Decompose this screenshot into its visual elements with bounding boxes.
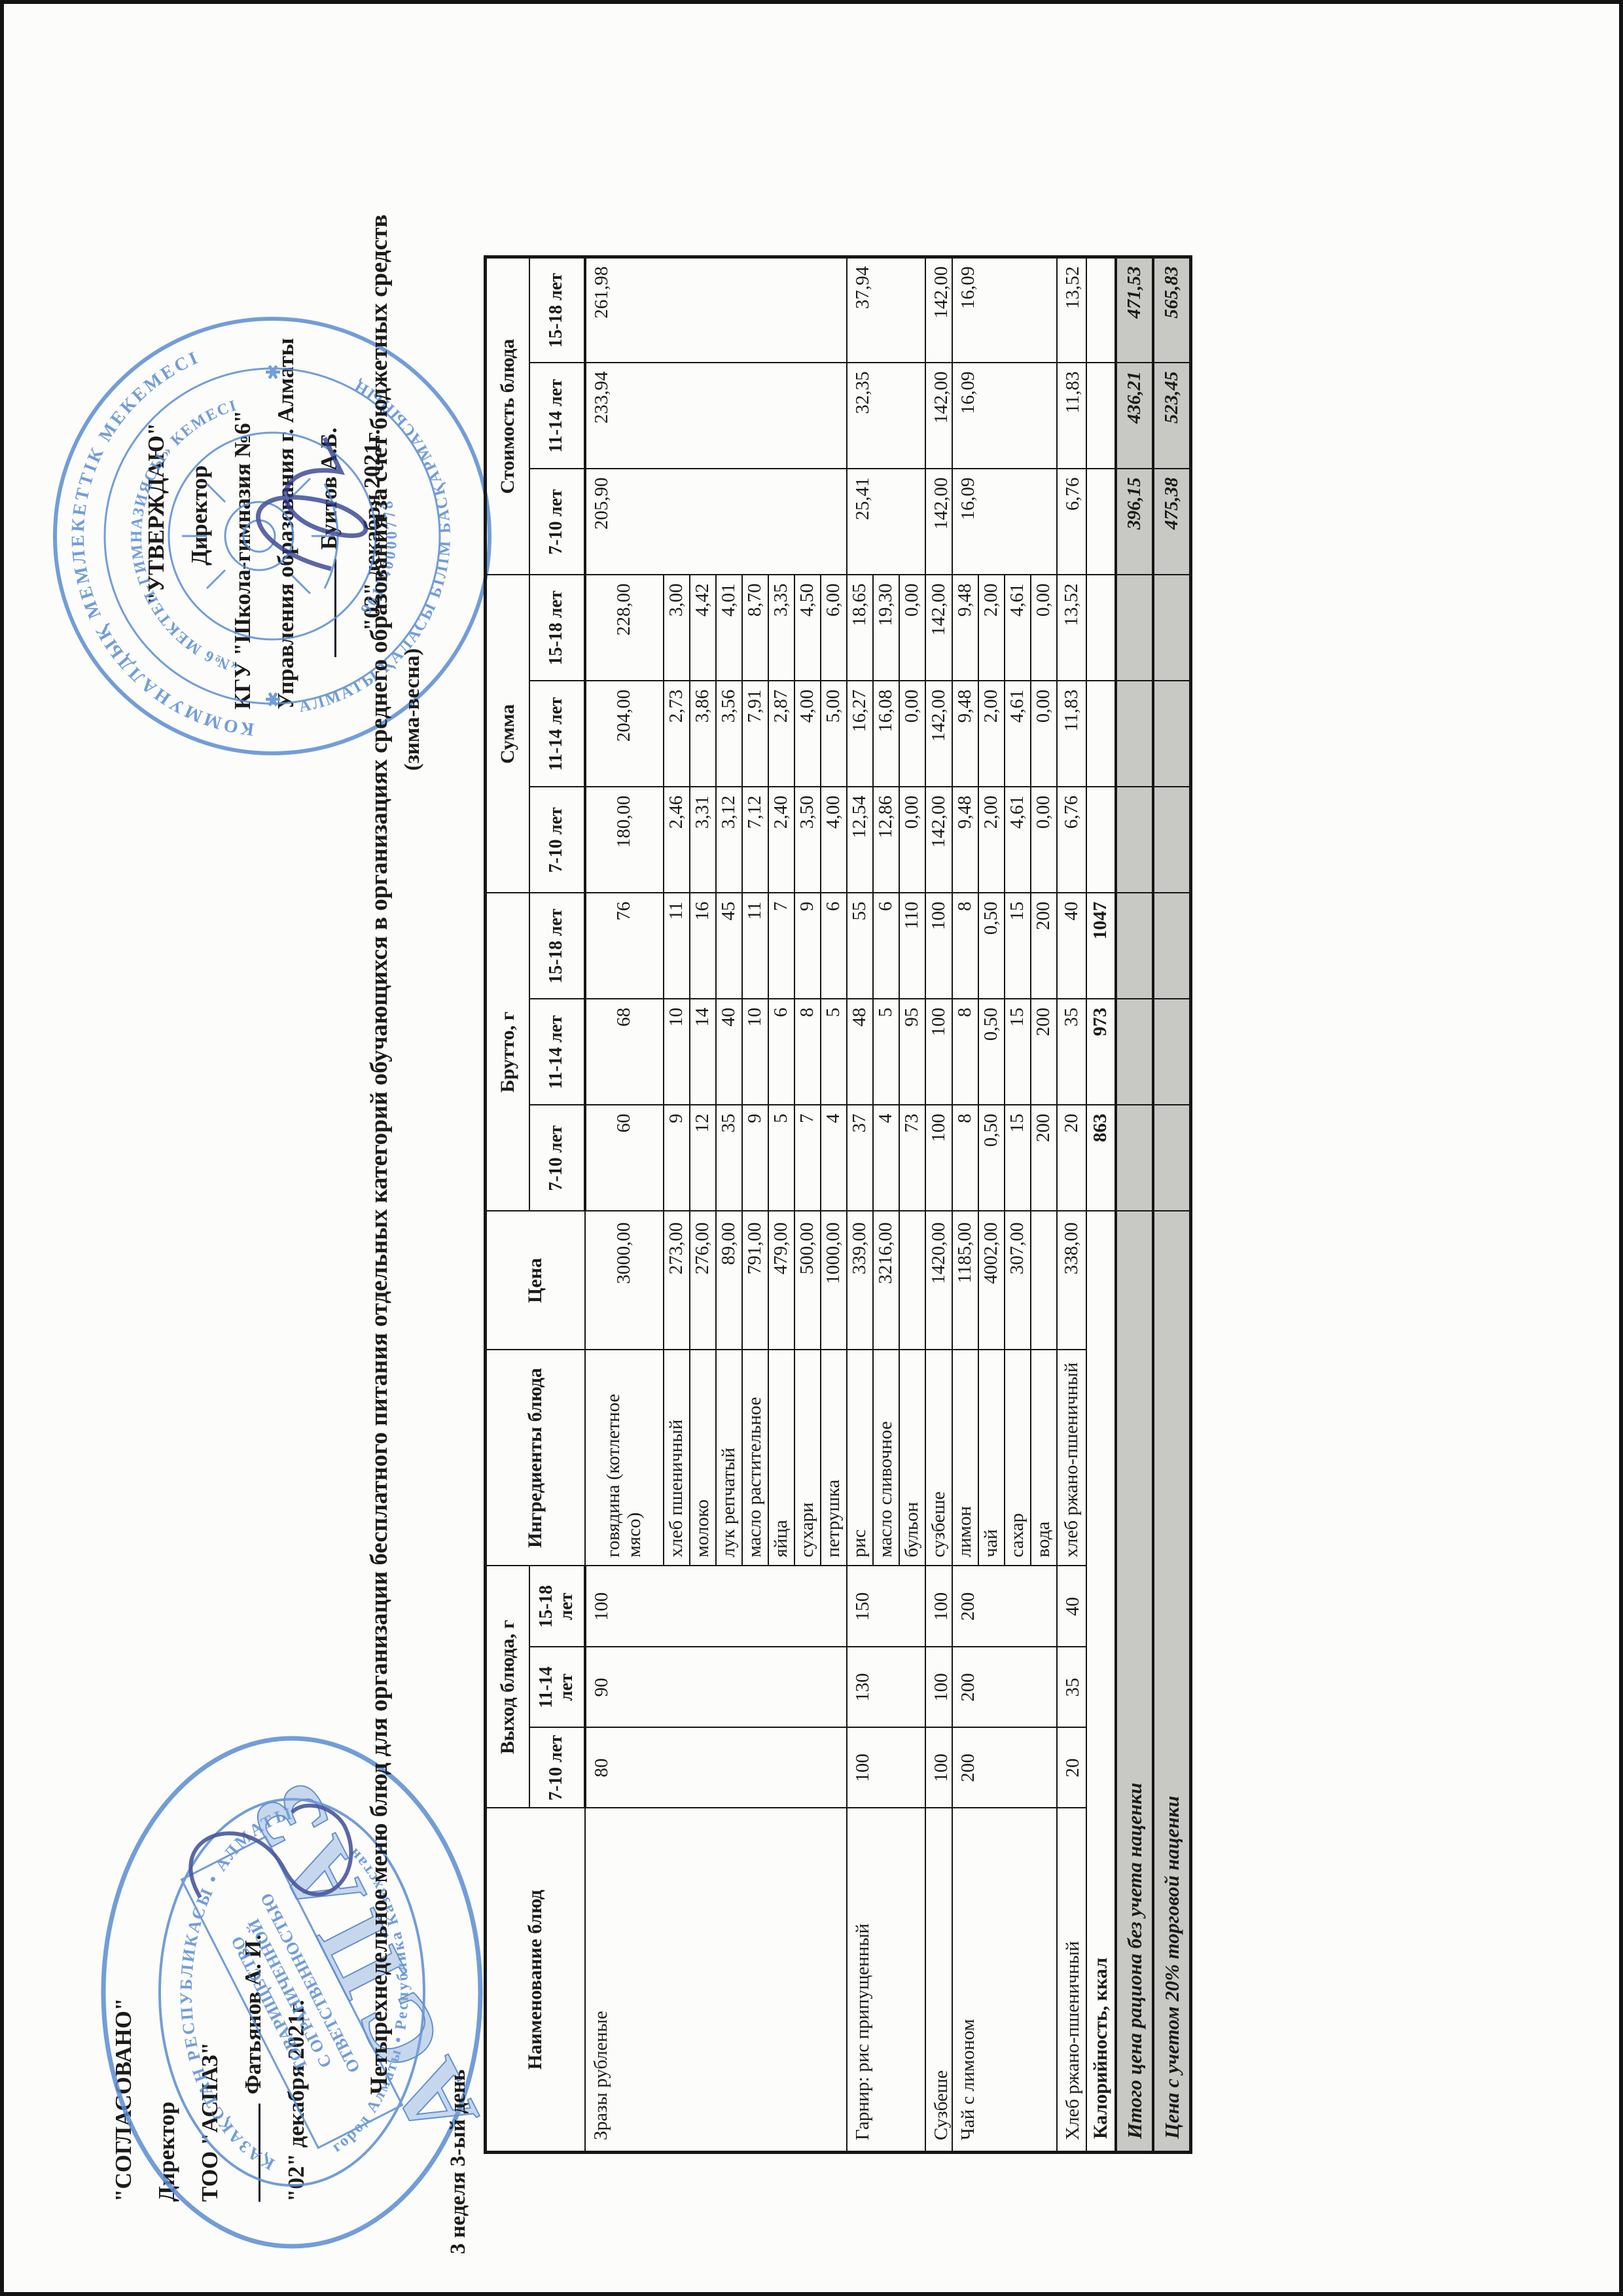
summary-row: Цена с учетом 20% торговой наценки475,38… <box>1153 257 1191 2152</box>
cell-summary-label: Итого цена рациона без учета наценки <box>1116 1211 1153 2152</box>
col-header-age: 7-10 лет <box>529 469 585 575</box>
cell-price: 3000,00 <box>585 1211 664 1350</box>
cell-empty <box>1116 893 1153 999</box>
cell-summary-value: 396,15 <box>1116 469 1153 575</box>
cell-brutto: 15 <box>1005 1105 1031 1211</box>
cell-ingredient: бульон <box>899 1350 925 1566</box>
col-header-age: 7-10 лет <box>529 1105 585 1211</box>
cell-brutto: 73 <box>899 1105 925 1211</box>
cell-ingredient: масло сливочное <box>873 1350 899 1566</box>
cell-yield: 40 <box>1057 1566 1086 1647</box>
cell-brutto: 0,50 <box>978 893 1005 999</box>
cell-cost: 233,94 <box>585 363 847 469</box>
cell-brutto: 35 <box>716 1105 742 1211</box>
cell-price: 307,00 <box>1005 1211 1031 1350</box>
cell-brutto: 6 <box>821 893 847 999</box>
scanned-document-page: "СОГЛАСОВАНО" Директор ТОО "АСПАЗ" Фатья… <box>0 0 1623 2296</box>
cell-sum: 4,61 <box>1005 787 1031 893</box>
menu-table: Наименование блюдВыход блюда, гИнгредиен… <box>484 255 1192 2154</box>
col-header-cost: Стоимость блюда <box>486 257 529 575</box>
cell-price: 338,00 <box>1057 1211 1086 1350</box>
cell-ingredient: рис <box>847 1350 873 1566</box>
cell-sum: 228,00 <box>585 575 664 681</box>
cell-empty <box>1086 363 1116 469</box>
cell-ingredient: масло растительное <box>742 1350 768 1566</box>
cell-price <box>899 1211 925 1350</box>
cell-dish-name: Чай с лимоном <box>952 1808 1057 2153</box>
cell-cost: 25,41 <box>847 469 925 575</box>
cell-yield: 100 <box>925 1728 952 1808</box>
cell-brutto: 5 <box>873 999 899 1105</box>
cell-sum: 2,00 <box>978 681 1005 787</box>
cell-empty <box>1086 575 1116 681</box>
cell-sum: 16,08 <box>873 681 899 787</box>
cell-brutto: 35 <box>1057 999 1086 1105</box>
cell-brutto: 200 <box>1031 893 1057 999</box>
cell-cost: 142,00 <box>925 363 952 469</box>
cell-dish-name: Гарнир: рис припущенный <box>847 1808 925 2153</box>
cell-brutto: 15 <box>1005 893 1031 999</box>
cell-cost: 32,35 <box>847 363 925 469</box>
cell-sum: 4,42 <box>690 575 716 681</box>
cell-calories-label: Калорийность, ккал <box>1086 1211 1116 2152</box>
document-subtitle: (зима-весна) <box>401 520 425 899</box>
cell-sum: 9,48 <box>952 787 978 893</box>
cell-brutto: 110 <box>899 893 925 999</box>
cell-sum: 142,00 <box>925 681 952 787</box>
cell-brutto: 8 <box>952 999 978 1105</box>
cell-sum: 7,91 <box>742 681 768 787</box>
cell-sum: 4,61 <box>1005 681 1031 787</box>
cell-price: 500,00 <box>794 1211 821 1350</box>
cell-brutto: 20 <box>1057 1105 1086 1211</box>
cell-sum: 0,00 <box>1031 681 1057 787</box>
cell-summary-value: 436,21 <box>1116 363 1153 469</box>
cell-brutto: 7 <box>768 893 794 999</box>
cell-sum: 2,00 <box>978 575 1005 681</box>
cell-brutto: 200 <box>1031 999 1057 1105</box>
cell-empty <box>1116 787 1153 893</box>
cell-summary-value: 471,53 <box>1116 257 1153 363</box>
cell-sum: 4,00 <box>821 787 847 893</box>
cell-price: 3216,00 <box>873 1211 899 1350</box>
cell-empty <box>1153 681 1191 787</box>
cell-sum: 2,00 <box>978 787 1005 893</box>
cell-sum: 4,00 <box>794 681 821 787</box>
cell-yield: 100 <box>585 1566 847 1647</box>
cell-empty <box>1153 787 1191 893</box>
cell-sum: 180,00 <box>585 787 664 893</box>
cell-ingredient: яйца <box>768 1350 794 1566</box>
cell-ingredient: сухари <box>794 1350 821 1566</box>
cell-dish-name: Сузбеше <box>925 1808 952 2153</box>
cell-sum: 142,00 <box>925 575 952 681</box>
cell-sum: 0,00 <box>899 575 925 681</box>
cell-brutto: 0,50 <box>978 1105 1005 1211</box>
cell-yield: 20 <box>1057 1728 1086 1808</box>
cell-cost: 37,94 <box>847 257 925 363</box>
cell-ingredient: чай <box>978 1350 1005 1566</box>
cell-brutto: 7 <box>794 1105 821 1211</box>
cell-sum: 3,35 <box>768 575 794 681</box>
cell-empty <box>1086 787 1116 893</box>
cell-price: 1420,00 <box>925 1211 952 1350</box>
cell-brutto: 10 <box>742 999 768 1105</box>
cell-brutto: 14 <box>690 999 716 1105</box>
document-title: Четырехнедельное меню блюд для организац… <box>365 120 393 2189</box>
cell-sum: 6,00 <box>821 575 847 681</box>
table-row: Хлеб ржано-пшеничный203540хлеб ржано-пше… <box>1057 257 1086 2152</box>
cell-brutto: 6 <box>873 893 899 999</box>
cell-ingredient: петрушка <box>821 1350 847 1566</box>
cell-empty <box>1153 575 1191 681</box>
table-row: Гарнир: рис припущенный100130150рис339,0… <box>847 257 873 2152</box>
col-header-price: Цена <box>486 1211 585 1350</box>
cell-sum: 13,52 <box>1057 575 1086 681</box>
col-header-ingredients: Ингредиенты блюда <box>486 1350 585 1566</box>
cell-brutto: 5 <box>768 1105 794 1211</box>
cell-price: 4002,00 <box>978 1211 1005 1350</box>
cell-sum: 11,83 <box>1057 681 1086 787</box>
cell-cost: 6,76 <box>1057 469 1086 575</box>
cell-brutto: 68 <box>585 999 664 1105</box>
stamp-star-left: ✱ <box>263 691 285 708</box>
cell-cost: 142,00 <box>925 257 952 363</box>
cell-price: 89,00 <box>716 1211 742 1350</box>
cell-brutto: 4 <box>873 1105 899 1211</box>
cell-cost: 11,83 <box>1057 363 1086 469</box>
cell-brutto: 8 <box>952 1105 978 1211</box>
cell-brutto: 55 <box>847 893 873 999</box>
cell-sum: 0,00 <box>899 681 925 787</box>
cell-cost: 261,98 <box>585 257 847 363</box>
cell-sum: 8,70 <box>742 575 768 681</box>
cell-brutto: 6 <box>768 999 794 1105</box>
table-row: Зразы рубленые8090100говядина (котлетное… <box>585 257 664 2152</box>
cell-brutto: 60 <box>585 1105 664 1211</box>
cell-price: 791,00 <box>742 1211 768 1350</box>
header-row-groups: Наименование блюдВыход блюда, гИнгредиен… <box>486 257 529 2152</box>
cell-brutto: 11 <box>664 893 690 999</box>
cell-sum: 12,54 <box>847 787 873 893</box>
summary-row: Итого цена рациона без учета наценки396,… <box>1116 257 1153 2152</box>
cell-sum: 204,00 <box>585 681 664 787</box>
cell-dish-name: Зразы рубленые <box>585 1808 847 2153</box>
cell-cost: 16,09 <box>952 257 1057 363</box>
cell-brutto: 11 <box>742 893 768 999</box>
cell-brutto: 8 <box>794 999 821 1105</box>
col-header-brutto: Брутто, г <box>486 893 529 1211</box>
cell-sum: 7,12 <box>742 787 768 893</box>
table-header: Наименование блюдВыход блюда, гИнгредиен… <box>486 257 585 2152</box>
cell-yield: 150 <box>847 1566 925 1647</box>
cell-empty <box>1086 469 1116 575</box>
cell-sum: 9,48 <box>952 681 978 787</box>
table-body: Зразы рубленые8090100говядина (котлетное… <box>585 257 1191 2152</box>
cell-brutto: 12 <box>690 1105 716 1211</box>
cell-brutto: 16 <box>690 893 716 999</box>
cell-cost: 205,90 <box>585 469 847 575</box>
col-header-sum: Сумма <box>486 575 529 893</box>
cell-brutto: 45 <box>716 893 742 999</box>
cell-brutto: 9 <box>794 893 821 999</box>
cell-brutto: 9 <box>664 1105 690 1211</box>
calories-row: Калорийность, ккал8639731047 <box>1086 257 1116 2152</box>
cell-summary-value: 523,45 <box>1153 363 1191 469</box>
cell-yield: 80 <box>585 1728 847 1808</box>
cell-sum: 3,86 <box>690 681 716 787</box>
cell-empty <box>1153 1105 1191 1211</box>
cell-price: 1185,00 <box>952 1211 978 1350</box>
cell-sum: 3,50 <box>794 787 821 893</box>
cell-ingredient: говядина (котлетное мясо) <box>585 1350 664 1566</box>
cell-yield: 200 <box>952 1728 1057 1808</box>
cell-empty <box>1086 681 1116 787</box>
col-header-age: 15-18 лет <box>529 575 585 681</box>
cell-empty <box>1086 257 1116 363</box>
cell-ingredient: лук репчатый <box>716 1350 742 1566</box>
cell-brutto: 37 <box>847 1105 873 1211</box>
cell-sum: 2,73 <box>664 681 690 787</box>
col-header-age: 7-10 лет <box>529 787 585 893</box>
cell-sum: 3,56 <box>716 681 742 787</box>
cell-sum: 3,12 <box>716 787 742 893</box>
cell-cost: 13,52 <box>1057 257 1086 363</box>
col-header-age: 15-18 лет <box>529 893 585 999</box>
col-header-age: 11-14 лет <box>529 999 585 1105</box>
cell-empty <box>1153 999 1191 1105</box>
cell-yield: 100 <box>925 1647 952 1728</box>
cell-brutto: 76 <box>585 893 664 999</box>
cell-empty <box>1116 681 1153 787</box>
cell-ingredient: сахар <box>1005 1350 1031 1566</box>
cell-summary-value: 565,83 <box>1153 257 1191 363</box>
cell-ingredient: лимон <box>952 1350 978 1566</box>
cell-ingredient: вода <box>1031 1350 1057 1566</box>
col-header-age: 11-14 лет <box>529 1647 585 1728</box>
cell-sum: 142,00 <box>925 787 952 893</box>
col-header-age: 11-14 лет <box>529 363 585 469</box>
cell-empty <box>1116 575 1153 681</box>
cell-yield: 35 <box>1057 1647 1086 1728</box>
week-day-label: 3 неделя 3-ый день <box>446 2070 471 2254</box>
cell-brutto: 9 <box>742 1105 768 1211</box>
cell-price: 479,00 <box>768 1211 794 1350</box>
cell-brutto: 200 <box>1031 1105 1057 1211</box>
cell-sum: 12,86 <box>873 787 899 893</box>
cell-brutto: 48 <box>847 999 873 1105</box>
cell-ingredient: хлеб пшеничный <box>664 1350 690 1566</box>
cell-sum: 6,76 <box>1057 787 1086 893</box>
round-stamp-school: КОММУНАЛДЫҚ МЕМЛЕКЕТТІК МЕКЕМЕСІ АЛМАТЫ … <box>43 307 501 765</box>
cell-price <box>1031 1211 1057 1350</box>
cell-sum: 19,30 <box>873 575 899 681</box>
cell-sum: 2,87 <box>768 681 794 787</box>
cell-brutto: 95 <box>899 999 925 1105</box>
cell-brutto: 0,50 <box>978 999 1005 1105</box>
cell-price: 339,00 <box>847 1211 873 1350</box>
cell-dish-name: Хлеб ржано-пшеничный <box>1057 1808 1086 2153</box>
col-header-age: 11-14 лет <box>529 681 585 787</box>
cell-sum: 4,61 <box>1005 575 1031 681</box>
cell-ingredient: сузбеше <box>925 1350 952 1566</box>
cell-sum: 2,40 <box>768 787 794 893</box>
col-header-yield: Выход блюда, г <box>486 1566 529 1808</box>
cell-summary-label: Цена с учетом 20% торговой наценки <box>1153 1211 1191 2152</box>
cell-cost: 142,00 <box>925 469 952 575</box>
cell-sum: 0,00 <box>899 787 925 893</box>
cell-yield: 200 <box>952 1647 1057 1728</box>
col-header-dish: Наименование блюд <box>486 1808 585 2153</box>
cell-yield: 200 <box>952 1566 1057 1647</box>
cell-price: 276,00 <box>690 1211 716 1350</box>
table-row: Сузбеше100100100сузбеше1420,001001001001… <box>925 257 952 2152</box>
cell-sum: 0,00 <box>1031 787 1057 893</box>
cell-sum: 2,46 <box>664 787 690 893</box>
cell-brutto: 10 <box>664 999 690 1105</box>
cell-empty <box>1116 1105 1153 1211</box>
cell-brutto: 100 <box>925 999 952 1105</box>
cell-yield: 100 <box>925 1566 952 1647</box>
cell-brutto: 100 <box>925 1105 952 1211</box>
cell-brutto: 15 <box>1005 999 1031 1105</box>
cell-calories-value: 973 <box>1086 999 1116 1105</box>
cell-brutto: 8 <box>952 893 978 999</box>
cell-sum: 16,27 <box>847 681 873 787</box>
signature-right-squiggle <box>258 438 366 569</box>
cell-brutto: 40 <box>1057 893 1086 999</box>
cell-brutto: 4 <box>821 1105 847 1211</box>
cell-yield: 130 <box>847 1647 925 1728</box>
cell-sum: 4,50 <box>794 575 821 681</box>
cell-cost: 16,09 <box>952 469 1057 575</box>
col-header-age: 15-18 лет <box>529 1566 585 1647</box>
cell-calories-value: 863 <box>1086 1105 1116 1211</box>
cell-price: 273,00 <box>664 1211 690 1350</box>
stamp-emblem <box>182 478 338 594</box>
cell-sum: 4,01 <box>716 575 742 681</box>
stamp-star-right: ✱ <box>263 364 285 380</box>
col-header-age: 15-18 лет <box>529 257 585 363</box>
cell-brutto: 40 <box>716 999 742 1105</box>
cell-summary-value: 475,38 <box>1153 469 1191 575</box>
table-row: Чай с лимоном200200200лимон1185,008889,4… <box>952 257 978 2152</box>
cell-sum: 3,00 <box>664 575 690 681</box>
cell-cost: 16,09 <box>952 363 1057 469</box>
cell-brutto: 5 <box>821 999 847 1105</box>
cell-brutto: 100 <box>925 893 952 999</box>
cell-sum: 18,65 <box>847 575 873 681</box>
cell-price: 1000,00 <box>821 1211 847 1350</box>
cell-yield: 90 <box>585 1647 847 1728</box>
cell-sum: 0,00 <box>1031 575 1057 681</box>
cell-yield: 100 <box>847 1728 925 1808</box>
cell-empty <box>1116 999 1153 1105</box>
cell-sum: 3,31 <box>690 787 716 893</box>
landscape-sheet: "СОГЛАСОВАНО" Директор ТОО "АСПАЗ" Фатья… <box>4 4 1623 2296</box>
cell-ingredient: молоко <box>690 1350 716 1566</box>
cell-empty <box>1153 893 1191 999</box>
cell-sum: 9,48 <box>952 575 978 681</box>
col-header-age: 7-10 лет <box>529 1728 585 1808</box>
cell-calories-value: 1047 <box>1086 893 1116 999</box>
cell-sum: 5,00 <box>821 681 847 787</box>
oval-stamp-aspaz: ҚАЗАҚСТАН РЕСПУБЛИКАСЫ • АЛМАТЫ ҚАЛАСЫ г… <box>89 1721 495 2264</box>
cell-ingredient: хлеб ржано-пшеничный <box>1057 1350 1086 1566</box>
